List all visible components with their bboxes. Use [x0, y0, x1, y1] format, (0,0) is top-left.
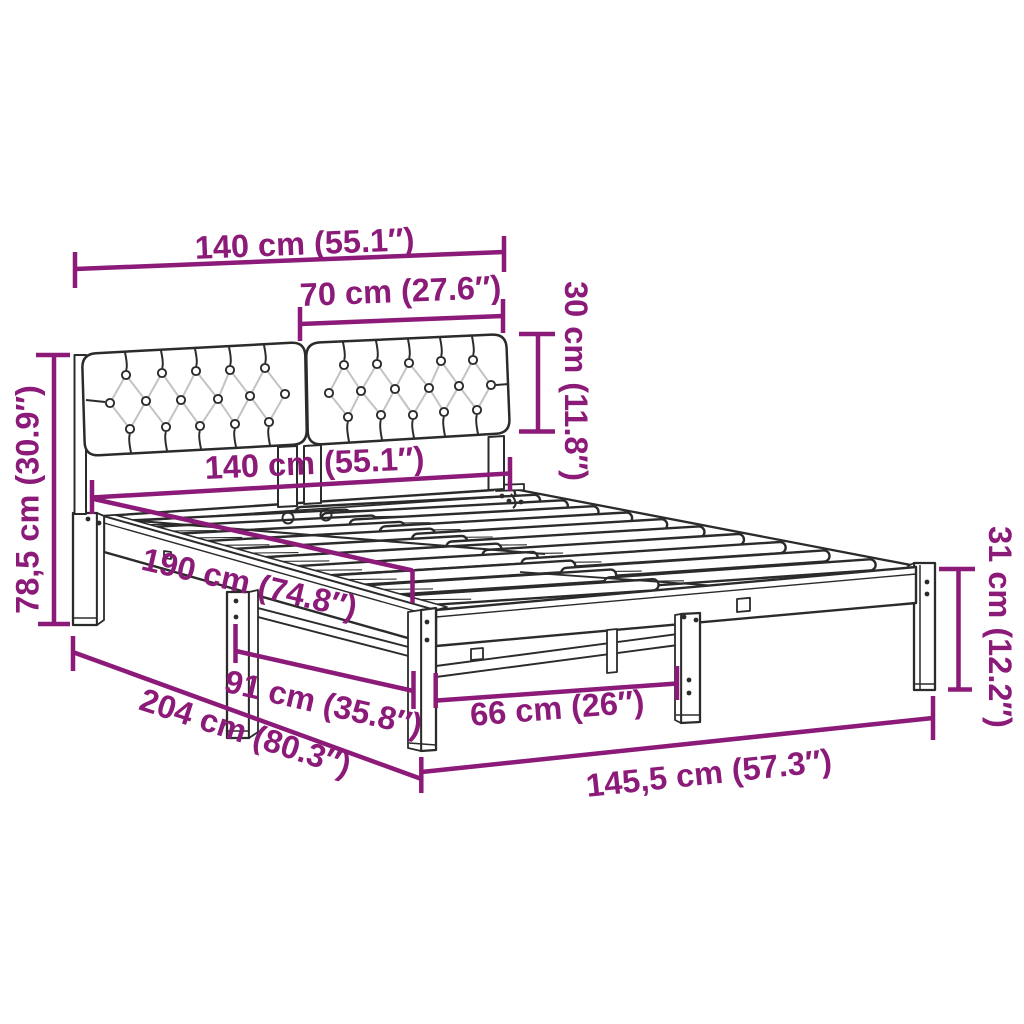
svg-text:30 cm (11.8″): 30 cm (11.8″)	[558, 281, 594, 481]
svg-text:31 cm (12.2″): 31 cm (12.2″)	[982, 526, 1018, 728]
svg-text:78,5 cm (30.9″): 78,5 cm (30.9″)	[10, 385, 46, 614]
